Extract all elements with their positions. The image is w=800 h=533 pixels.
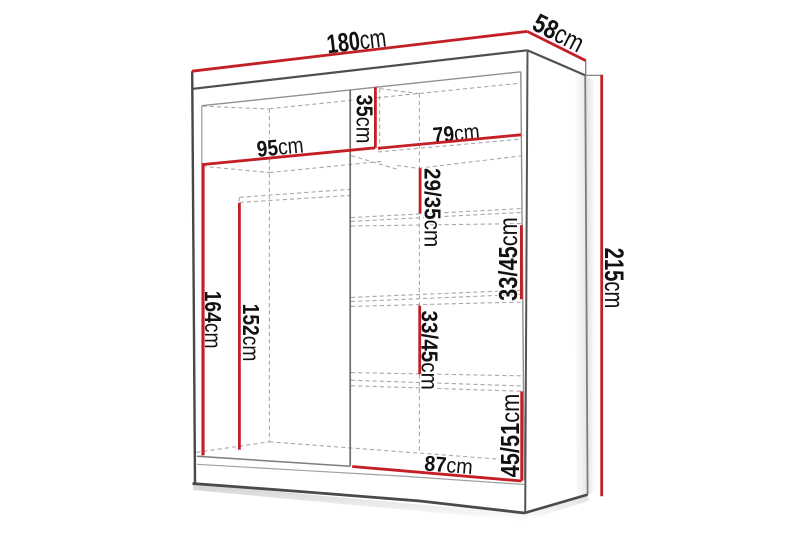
svg-text:35cm: 35cm [351,95,378,144]
svg-text:79cm: 79cm [432,119,481,148]
svg-text:29/35cm: 29/35cm [419,168,446,247]
svg-text:152cm: 152cm [238,304,264,362]
svg-text:33/45cm: 33/45cm [494,217,523,301]
